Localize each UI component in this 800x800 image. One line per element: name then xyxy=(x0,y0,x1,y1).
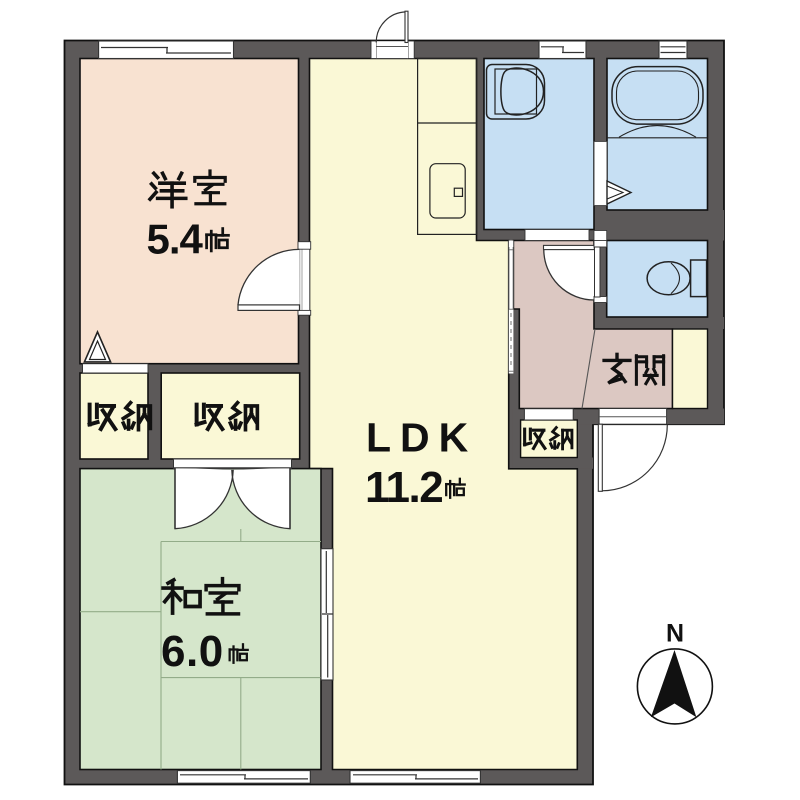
svg-text:6.0: 6.0 xyxy=(161,627,224,676)
svg-text:5.4: 5.4 xyxy=(147,216,204,263)
svg-text:LDK: LDK xyxy=(366,415,477,461)
svg-text:N: N xyxy=(666,620,684,648)
svg-text:11.2: 11.2 xyxy=(365,463,442,512)
